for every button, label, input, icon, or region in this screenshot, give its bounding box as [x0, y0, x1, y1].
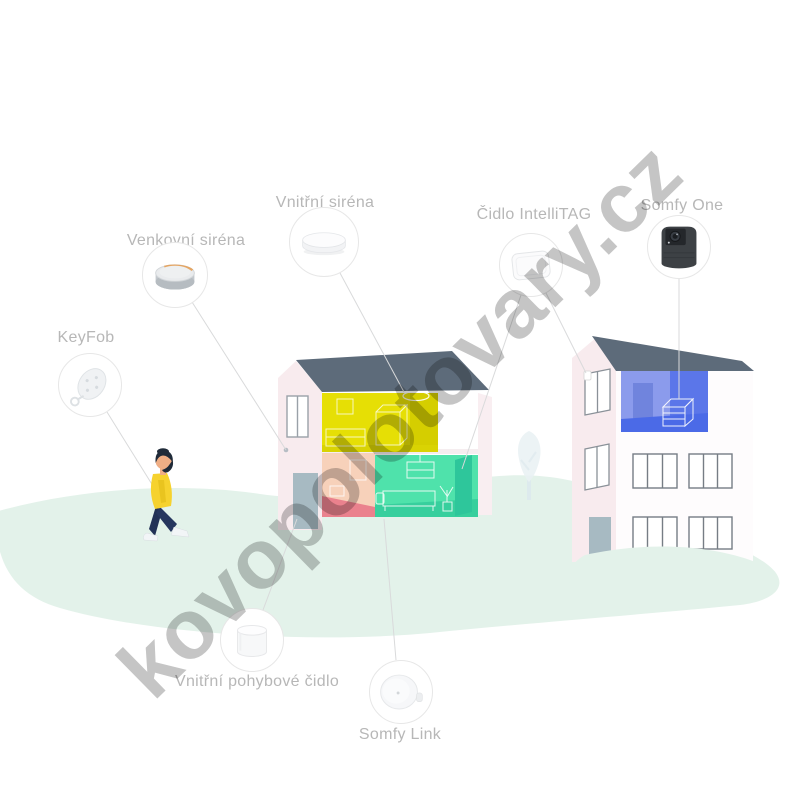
- intellitag-label: Čidlo IntelliTAG: [477, 206, 592, 224]
- left-house-window: [287, 396, 308, 437]
- indoor-siren-device: [289, 207, 359, 277]
- keyfob-device: [58, 353, 122, 417]
- somfy-one-label: Somfy One: [641, 197, 724, 215]
- keyfob-remote-icon: [59, 353, 121, 417]
- intellitag-on-window: [584, 371, 591, 380]
- right-house: [572, 336, 754, 562]
- motion-sensor-label: Vnitřní pohybové čidlo: [175, 673, 339, 691]
- salmon-room: [322, 453, 375, 517]
- somfy-link-label: Somfy Link: [359, 726, 441, 744]
- outdoor-siren-icon: [143, 242, 207, 308]
- line-intellitag-window: [546, 293, 586, 373]
- motion-sensor-device: [220, 608, 284, 672]
- security-camera-icon: [648, 215, 710, 279]
- somfy-link-device: [369, 660, 433, 724]
- motion-sensor-icon: [221, 608, 283, 672]
- line-keyfob-person: [107, 412, 158, 494]
- blue-room: [621, 371, 708, 432]
- indoor-siren-icon: [290, 207, 358, 277]
- left-house: [278, 351, 492, 530]
- hub-link-icon: [370, 660, 432, 724]
- intellitag-device: [499, 233, 563, 297]
- green-room: [375, 455, 478, 517]
- somfy-one-device: [647, 215, 711, 279]
- line-outdoor-siren-wall: [192, 302, 286, 450]
- intellitag-sensor-icon: [500, 233, 562, 297]
- smart-home-diagram: KeyFob Venkovní siréna Vnitřní siréna: [0, 0, 800, 800]
- yellow-room: [322, 392, 438, 453]
- keyfob-label: KeyFob: [58, 329, 115, 347]
- outdoor-siren-device: [142, 242, 208, 308]
